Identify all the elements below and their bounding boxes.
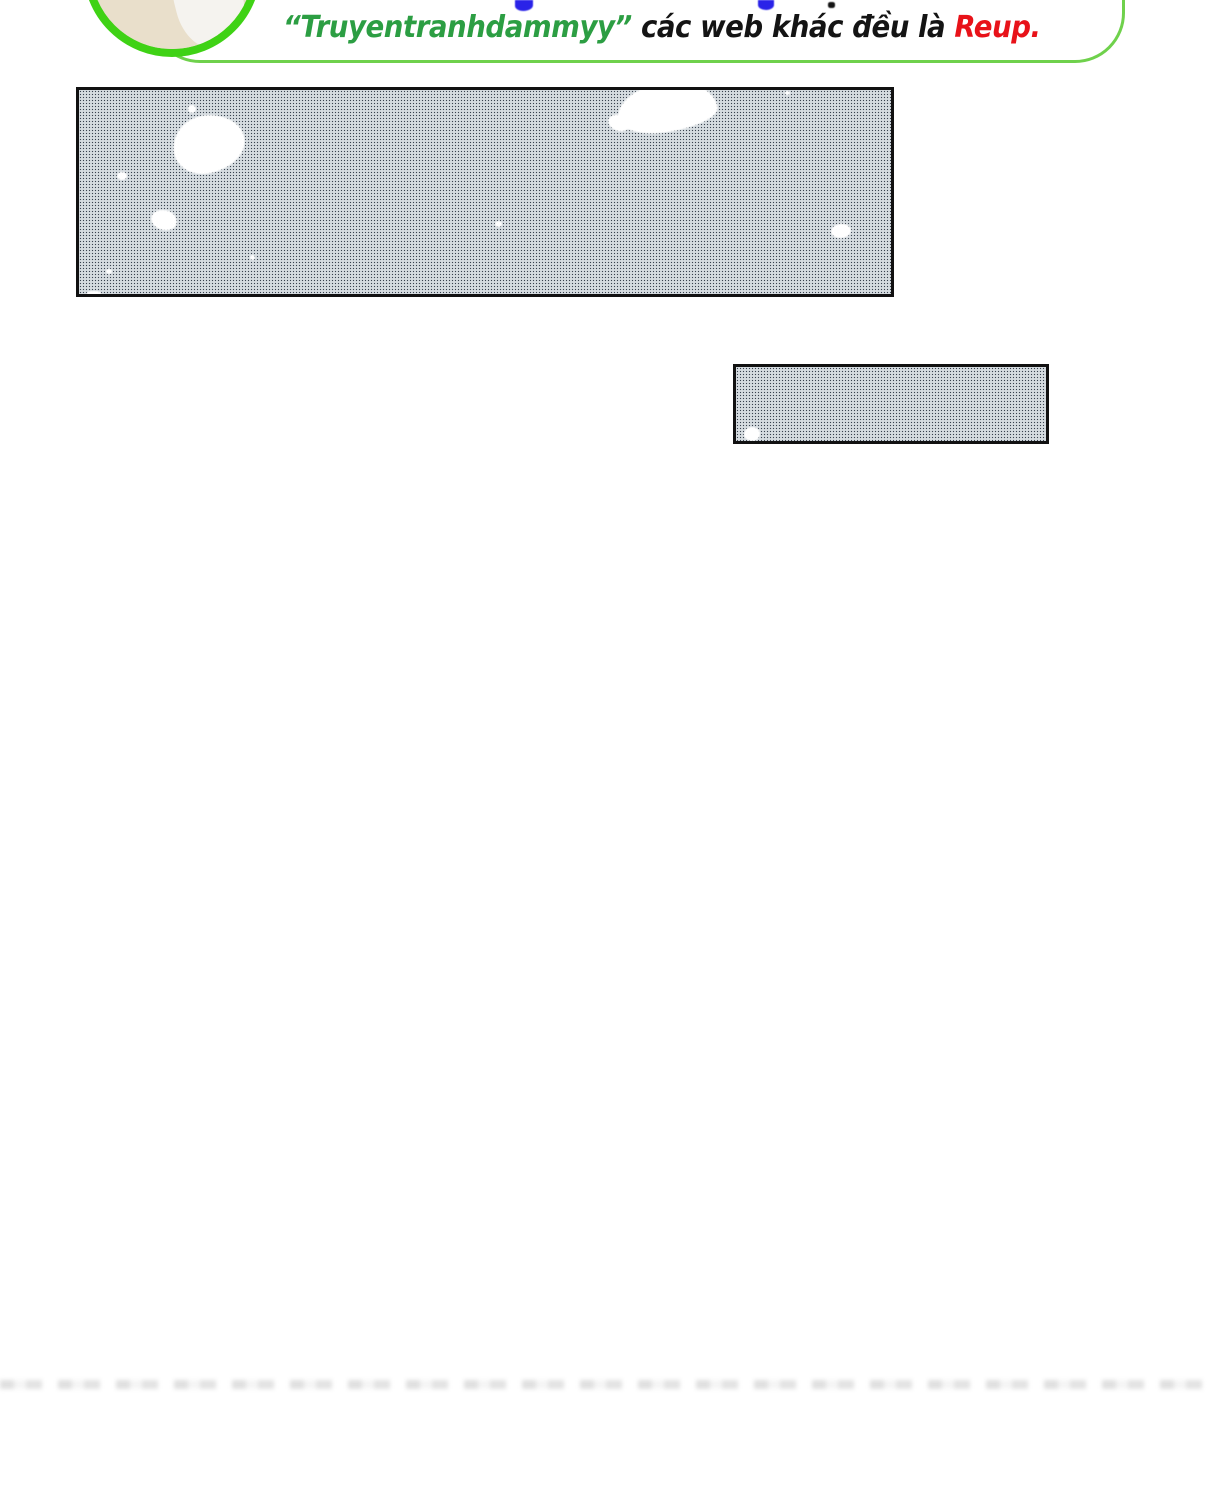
cutoff-letter-fragment <box>758 0 774 10</box>
screentone-white-spot <box>495 221 502 227</box>
next-image-edge-artifact <box>0 1380 1207 1389</box>
screentone-panel-small <box>733 364 1049 444</box>
screentone-white-spot <box>830 223 851 239</box>
credit-message-body: các web khác đều là <box>632 10 955 45</box>
screentone-panel-large <box>76 87 894 297</box>
comic-page: “Truyentranhdammyy” các web khác đều là … <box>0 0 1207 1500</box>
screentone-white-spot <box>117 172 127 180</box>
screentone-white-spot <box>744 427 760 441</box>
screentone-white-spot <box>250 255 255 260</box>
screentone-white-spot <box>188 105 196 113</box>
screentone-white-spot <box>87 291 101 296</box>
cutoff-letter-fragment <box>828 2 835 8</box>
reup-warning: Reup. <box>954 10 1040 45</box>
screentone-white-spot <box>169 109 250 179</box>
screentone-white-spot <box>149 207 179 233</box>
credit-message: “Truyentranhdammyy” các web khác đều là … <box>283 11 1041 45</box>
screentone-white-spot <box>106 269 112 274</box>
translator-name: “Truyentranhdammyy” <box>283 10 632 45</box>
screentone-white-spot <box>785 91 790 95</box>
screentone-white-spot <box>614 87 720 139</box>
